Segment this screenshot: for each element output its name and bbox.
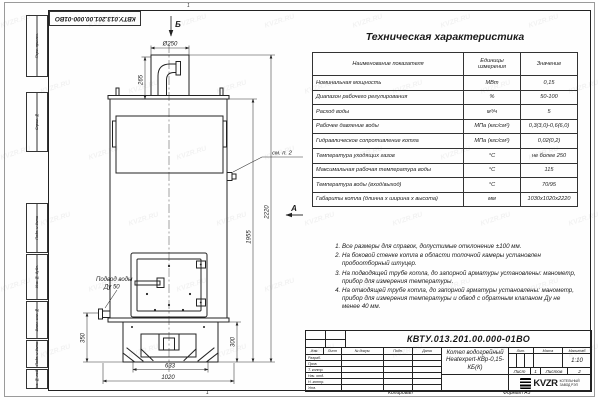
inlet-label-line1: Подвод воды <box>96 277 133 283</box>
see-note-2-label: см. п. 2 <box>272 151 293 157</box>
tb-col-sign: Подп. <box>384 348 413 355</box>
bottom-strip: 1 Копировал Формат А3 <box>48 389 589 397</box>
tb-cell <box>509 354 517 368</box>
dim-dia-250: Ø250 <box>162 42 178 48</box>
tb-mass-value <box>534 354 563 368</box>
spec-header-row: Наименование показателя Единицы измерени… <box>313 53 577 76</box>
spec-col-value: Значение <box>521 53 577 75</box>
dim-350: 350 <box>81 332 87 343</box>
table-row: Номинальная мощностьМВт0,15 <box>313 76 577 91</box>
spec-col-units: Единицы измерения <box>464 53 521 75</box>
title-block: КВТУ.013.201.00.000-01ВО Изм. Лист № док… <box>305 330 592 392</box>
note-item: На боковой стенке котла в области топочн… <box>342 252 576 268</box>
table-row: Температура уходящих газов°Сне более 250 <box>313 149 577 164</box>
dimension-lines <box>83 16 303 384</box>
spec-table-title: Техническая характеристика <box>312 31 578 43</box>
note-item: На подводящей трубе котла, до запорной а… <box>342 270 576 286</box>
view-b-label: Б <box>175 20 181 29</box>
tb-cell <box>306 340 326 349</box>
dim-1955: 1955 <box>247 230 253 244</box>
table-row: Максимальная рабочая температура воды°С1… <box>313 164 577 179</box>
table-row: Габариты котла (длинна х ширина х высота… <box>313 193 577 207</box>
boiler-drawing: Ø250 Б 265 см. п. 2 А 2220 1955 300 350 … <box>0 0 310 400</box>
dim-633: 633 <box>165 364 176 370</box>
tb-sheets-label: Листов <box>541 368 568 375</box>
tb-scale-value: 1:10 <box>563 354 591 368</box>
tb-product-name: Котел водогрейный Heatexpert-КВр-0,15-КБ… <box>442 348 509 375</box>
table-row: Гидравлическое сопротивление котлаМПа (к… <box>313 134 577 149</box>
copied-label: Копировал <box>388 390 413 396</box>
note-item: На отводящей трубе котла, до запорной ар… <box>342 287 576 312</box>
format-label: Формат А3 <box>503 390 530 396</box>
tb-col-date: Дата <box>413 348 442 355</box>
table-row: Температура воды (вход/выход)°С70/95 <box>313 178 577 193</box>
dim-300: 300 <box>231 336 237 347</box>
kvzr-logo-icon <box>520 378 531 389</box>
spec-table: Наименование показателя Единицы измерени… <box>312 52 578 207</box>
tb-cell <box>517 354 525 368</box>
notes-list: Все размеры для справок, допустимые откл… <box>330 243 576 313</box>
inlet-label-line2: Ду 50 <box>103 285 120 291</box>
tb-col-doc: № докум. <box>342 348 384 355</box>
tb-sheet-number: 1 <box>531 368 541 375</box>
view-a-label: А <box>290 204 297 213</box>
dim-1020: 1020 <box>161 375 175 381</box>
tb-cell <box>525 354 534 368</box>
table-row: Рабочее давление водыМПа (кгс/см²)0,3(3,… <box>313 120 577 135</box>
tb-col-list: Лист <box>324 348 342 355</box>
boiler-outline <box>99 55 237 362</box>
dim-265: 265 <box>139 74 145 86</box>
dim-2220: 2220 <box>265 205 271 220</box>
note-item: Все размеры для справок, допустимые откл… <box>342 243 576 251</box>
tb-doc-number: КВТУ.013.201.00.000-01ВО <box>346 331 591 348</box>
tb-cell <box>306 331 326 340</box>
drawing-sheet: KVZR.RUKVZR.RUKVZR.RUKVZR.RUKVZR.RUKVZR.… <box>0 0 600 400</box>
kvzr-logo-text: KVZR <box>533 378 557 389</box>
tb-sheets-number: 2 <box>568 368 591 375</box>
company-logo: KVZR КОТЕЛЬНЫЙ ЗАВОД РЭП <box>520 378 579 389</box>
zone-mark-bottom: 1 <box>206 390 209 396</box>
company-name: КОТЕЛЬНЫЙ ЗАВОД РЭП <box>560 379 580 387</box>
tb-col-izm: Изм. <box>306 348 324 355</box>
tb-cell <box>326 340 346 349</box>
tb-sheet-label: Лист <box>509 368 531 375</box>
table-row: Диапазон рабочего регулирования%50-100 <box>313 91 577 106</box>
spec-col-name: Наименование показателя <box>313 53 464 75</box>
tb-cell <box>326 331 346 340</box>
table-row: Расход водым³/ч5 <box>313 105 577 120</box>
